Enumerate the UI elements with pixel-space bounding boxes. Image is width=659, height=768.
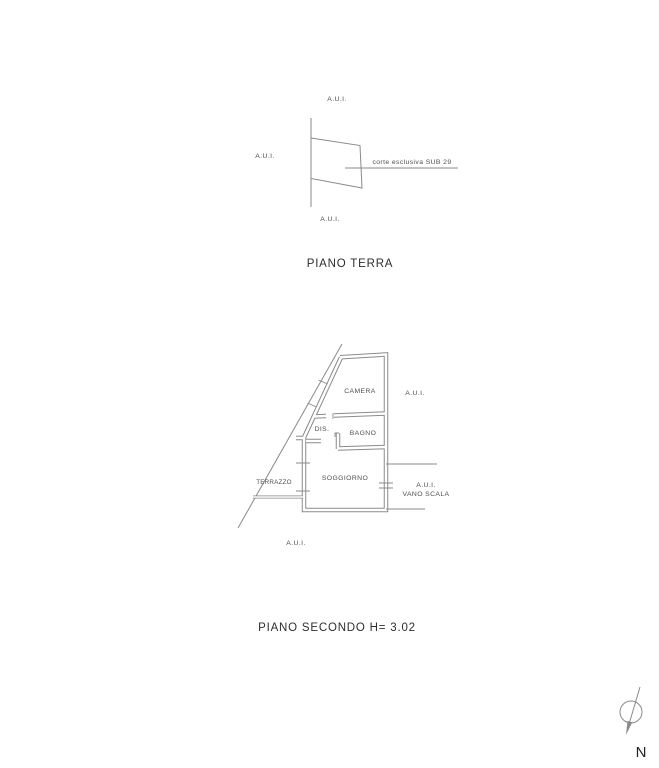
ground-floor-plan: A.U.I. corte esclusiva SUB 29 A.U.I. A.U…: [255, 96, 458, 270]
room-label-dis: DIS.: [315, 426, 330, 433]
aui-label-top: A.U.I.: [327, 96, 346, 103]
vano-scala-label: VANO SCALA: [403, 491, 450, 498]
floor-plan-sheet: A.U.I. corte esclusiva SUB 29 A.U.I. A.U…: [0, 0, 659, 768]
compass-circle: [620, 701, 642, 723]
room-label-bagno: BAGNO: [350, 430, 377, 437]
courtyard-outline: [311, 138, 362, 188]
room-label-camera: CAMERA: [344, 388, 376, 395]
second-floor-plan: CAMERA DIS. BAGNO SOGGIORNO TERRAZZO A.U…: [238, 344, 450, 634]
aui-label-stair: A.U.I.: [416, 482, 435, 489]
compass-arrowhead: [626, 721, 632, 735]
room-label-terrazzo: TERRAZZO: [256, 479, 292, 486]
second-floor-title: PIANO SECONDO H= 3.02: [258, 622, 416, 634]
aui-label-right: A.U.I.: [405, 390, 424, 397]
boundary-line-diagonal: [238, 344, 342, 528]
ground-floor-title: PIANO TERRA: [307, 258, 394, 270]
aui-label-bottom: A.U.I.: [320, 216, 339, 223]
aui-label-bottom-2: A.U.I.: [286, 540, 305, 547]
north-arrow-icon: N: [620, 687, 646, 761]
north-label: N: [636, 744, 647, 761]
floor-plan-drawing: A.U.I. corte esclusiva SUB 29 A.U.I. A.U…: [0, 0, 659, 768]
room-label-soggiorno: SOGGIORNO: [322, 475, 368, 482]
aui-label-left: A.U.I.: [255, 153, 274, 160]
corte-esclusiva-label: corte esclusiva SUB 29: [372, 159, 451, 166]
